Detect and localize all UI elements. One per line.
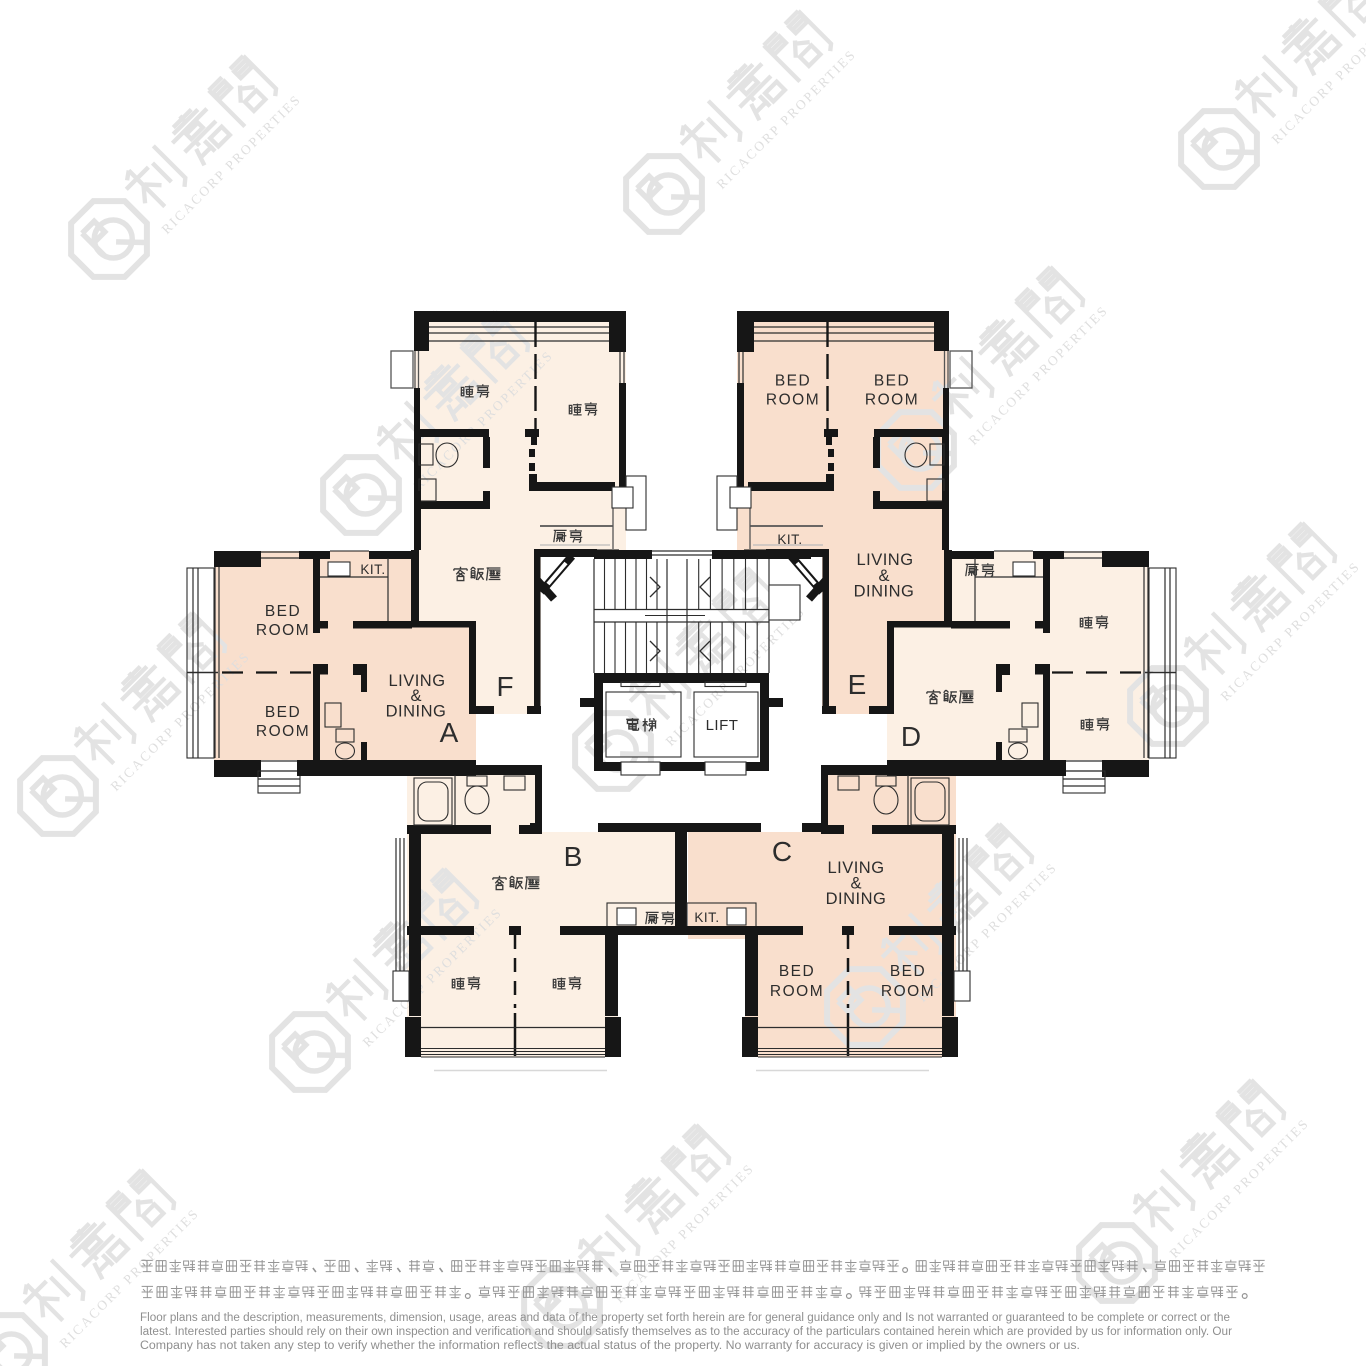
svg-text:BED: BED — [890, 963, 926, 980]
svg-text:BED: BED — [265, 603, 301, 620]
svg-text:Company has not taken any step: Company has not taken any step to verify… — [140, 1340, 1080, 1352]
svg-text:DINING: DINING — [386, 703, 447, 721]
svg-text:BED: BED — [775, 373, 811, 390]
svg-text:BED: BED — [779, 963, 815, 980]
svg-text:ROOM: ROOM — [256, 622, 310, 639]
svg-text:ROOM: ROOM — [256, 723, 310, 740]
svg-text:E: E — [848, 669, 867, 700]
svg-text:Floor plans and the descriptio: Floor plans and the description, measure… — [140, 1312, 1230, 1324]
svg-text:BED: BED — [265, 704, 301, 721]
svg-text:KIT.: KIT. — [360, 562, 385, 577]
svg-text:ROOM: ROOM — [881, 983, 935, 1000]
svg-text:B: B — [564, 841, 583, 872]
svg-text:ROOM: ROOM — [770, 983, 824, 1000]
svg-text:LIFT: LIFT — [706, 717, 739, 734]
svg-text:DINING: DINING — [854, 583, 915, 601]
svg-text:D: D — [901, 721, 921, 752]
svg-text:KIT.: KIT. — [777, 532, 802, 547]
svg-text:BED: BED — [874, 373, 910, 390]
svg-text:KIT.: KIT. — [694, 910, 719, 925]
svg-text:latest. Interested parties sho: latest. Interested parties should rely o… — [140, 1326, 1232, 1338]
svg-text:F: F — [496, 671, 513, 702]
svg-text:ROOM: ROOM — [766, 392, 820, 409]
svg-text:C: C — [772, 836, 792, 867]
svg-text:DINING: DINING — [826, 890, 887, 908]
svg-text:ROOM: ROOM — [865, 392, 919, 409]
svg-text:A: A — [440, 717, 459, 748]
